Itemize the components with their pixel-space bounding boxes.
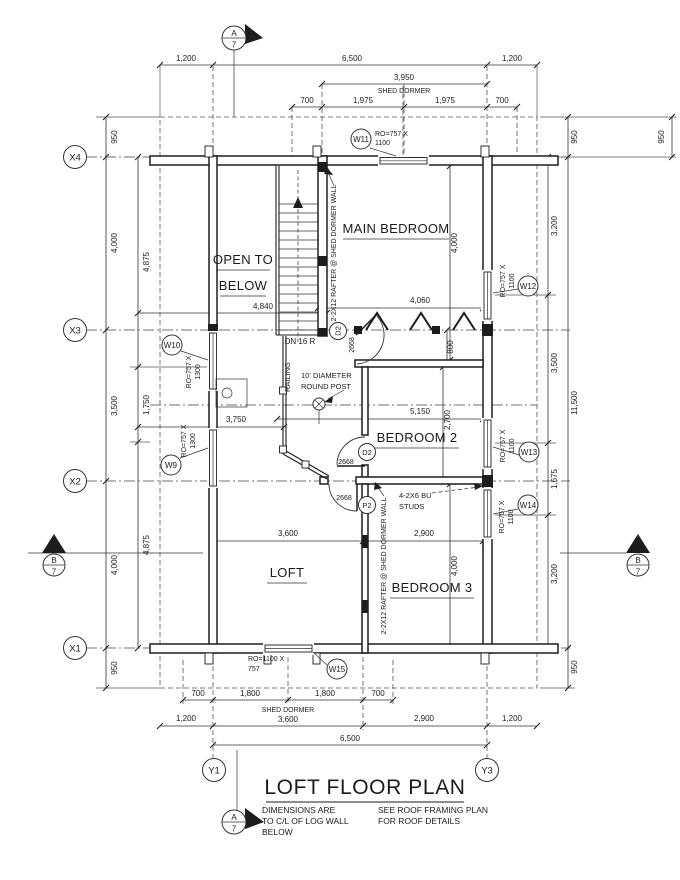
room-label-bedroom2: BEDROOM 2 — [377, 430, 458, 445]
dim-right-950-top: 950 — [570, 130, 579, 144]
note-roof-line2: FOR ROOF DETAILS — [378, 816, 460, 826]
main-bedroom-south-wall — [355, 360, 483, 367]
dim-top-3950: 3,950 — [394, 73, 415, 82]
round-post-note-line2: ROUND POST — [301, 382, 351, 391]
note-dims-line1: DIMENSIONS ARE — [262, 805, 336, 815]
dim-bottom-1800b: 1,800 — [315, 689, 336, 698]
dim-bottom-700b: 700 — [371, 689, 385, 698]
dim-mb-4060: 4,060 — [410, 296, 431, 305]
dim-stair-4840: 4,840 — [253, 302, 274, 311]
dim-left-1750: 1,750 — [142, 394, 151, 415]
dim-left-4000-bottom: 4,000 — [110, 554, 119, 575]
post-square — [432, 326, 440, 334]
studs-note-line1: 4-2X6 BU — [399, 491, 432, 500]
dim-right-3200-top: 3,200 — [550, 215, 559, 236]
dim-left-3500: 3,500 — [110, 395, 119, 416]
w14-ro-line2: 1100 — [508, 509, 515, 524]
section-a-top-sheet: 7 — [232, 41, 237, 50]
grid-label-x3: X3 — [69, 326, 81, 337]
dim-right-3500: 3,500 — [550, 352, 559, 373]
dim-left-950-top: 950 — [110, 130, 119, 144]
drawing-title: LOFT FLOOR PLAN — [264, 776, 465, 799]
dim-mb-800: 800 — [446, 340, 455, 354]
grid-label-x2: X2 — [69, 477, 81, 488]
d2-bed2-label: D2 — [362, 448, 372, 457]
dim-top-6500: 6,500 — [342, 54, 363, 63]
room-label-main-bedroom: MAIN BEDROOM — [343, 221, 450, 236]
stair-dormer-wall — [318, 156, 327, 336]
railing-label: RAILING — [283, 362, 292, 392]
dim-bottom-1200-left: 1,200 — [176, 714, 197, 723]
dim-bottom-shed-dormer: SHED DORMER — [262, 707, 315, 714]
p2-label: P2 — [362, 501, 371, 510]
w9-ro-line2: 1300 — [190, 433, 197, 449]
dim-left-950-bottom: 950 — [110, 661, 119, 675]
grid-label-y3: Y3 — [481, 766, 493, 777]
section-b-left-sheet: 7 — [52, 568, 57, 577]
section-b-left-letter: B — [51, 556, 56, 565]
section-b-right-letter: B — [635, 556, 640, 565]
w15-ro-line1: RO=1100 X — [248, 656, 285, 663]
grid-label-x4: X4 — [69, 153, 81, 164]
section-b-right-sheet: 7 — [636, 568, 641, 577]
d2-main-label: D2 — [334, 326, 343, 336]
dim-mb-4000: 4,000 — [450, 232, 459, 253]
w10-label: W10 — [164, 341, 181, 350]
dim-right-edge-950: 950 — [657, 130, 666, 144]
room-label-open-to: OPEN TO — [213, 252, 273, 267]
p2-size: 2668 — [336, 495, 352, 502]
dim-bottom-1200-right: 1,200 — [502, 714, 523, 723]
dim-left-4875-upper: 4,875 — [142, 251, 151, 272]
w15-label: W15 — [329, 665, 346, 674]
note-roof-line1: SEE ROOF FRAMING PLAN — [378, 805, 488, 815]
w13-ro-line1: RO=757 X — [500, 429, 507, 462]
rafter-note-bed3: 2-2X12 RAFTER @ SHED DORMER WALL — [381, 498, 388, 635]
dim-top-shed-dormer: SHED DORMER — [378, 88, 431, 95]
w12-label: W12 — [520, 282, 537, 291]
bedroom2-west-wall-lower — [362, 465, 368, 477]
d2-main-size: 2668 — [349, 337, 356, 353]
grid-label-y1: Y1 — [208, 766, 220, 777]
section-a-bottom-sheet: 7 — [232, 825, 237, 834]
dim-bottom-2900: 2,900 — [414, 714, 435, 723]
dim-loft-3750: 3,750 — [226, 415, 247, 424]
w11-label: W11 — [353, 135, 369, 144]
w10-ro-line2: 1300 — [195, 364, 202, 380]
w12-ro-line2: 1100 — [509, 273, 516, 288]
rafter-note-stair: 2-2X12 RAFTER @ SHED DORMER WALL — [331, 185, 338, 322]
room-label-loft: LOFT — [270, 565, 304, 580]
w13-label: W13 — [521, 448, 538, 457]
stair-down-label: DN 16 R — [285, 337, 316, 346]
note-dims-line3: BELOW — [262, 827, 293, 837]
w15-ro-line2: 757 — [248, 666, 260, 673]
dim-right-950-bottom: 950 — [570, 660, 579, 674]
floor-plan-drawing: W11 W10 W9 W12 W13 W14 W15 RO=757 X 1100… — [0, 0, 680, 880]
dim-top-1975a: 1,975 — [353, 96, 374, 105]
dim-b2-2700: 2,700 — [443, 409, 452, 430]
room-label-below: BELOW — [219, 278, 268, 293]
w12-ro-line1: RO=757 X — [500, 264, 507, 297]
section-a-bottom-letter: A — [231, 813, 237, 822]
w11-ro-line2: 1100 — [375, 140, 390, 147]
dim-bottom-3600: 3,600 — [278, 715, 299, 724]
w11-ro-line1: RO=757 X — [375, 131, 408, 138]
w9-label: W9 — [165, 461, 178, 470]
dim-right-1675: 1,675 — [550, 468, 559, 489]
dim-right-11500: 11,500 — [570, 391, 579, 415]
floor-plan-sheet: W11 W10 W9 W12 W13 W14 W15 RO=757 X 1100… — [0, 0, 680, 880]
bedroom2-west-wall-upper — [362, 367, 368, 435]
round-post-note-line1: 10' DIAMETER — [301, 371, 352, 380]
dim-top-1200-left: 1,200 — [176, 54, 197, 63]
right-log-wall — [483, 156, 492, 653]
w14-ro-line1: RO=757 X — [499, 500, 506, 533]
x2-wall — [356, 477, 492, 484]
section-a-top-letter: A — [231, 29, 237, 38]
studs-note-line2: STUDS — [399, 502, 424, 511]
dim-top-1975b: 1,975 — [435, 96, 456, 105]
dim-left-4875-lower: 4,875 — [142, 534, 151, 555]
w13-ro-line2: 1100 — [509, 438, 516, 453]
dim-b3-2900: 2,900 — [414, 529, 435, 538]
dim-left-4000-top: 4,000 — [110, 232, 119, 253]
note-dims-line2: TO C/L OF LOG WALL — [262, 816, 349, 826]
grid-label-x1: X1 — [69, 644, 81, 655]
w9-ro-line1: RO=757 X — [181, 424, 188, 457]
dim-top-700b: 700 — [495, 96, 509, 105]
dim-open-5150: 5,150 — [410, 407, 431, 416]
x2-wall-west-stub — [320, 477, 328, 484]
d2-bed2-size: 2668 — [338, 459, 354, 466]
dim-bottom-6500: 6,500 — [340, 734, 361, 743]
w10-ro-line1: RO=757 X — [186, 355, 193, 388]
dim-top-700a: 700 — [300, 96, 314, 105]
bottom-log-wall — [150, 644, 558, 653]
dim-top-1200-right: 1,200 — [502, 54, 523, 63]
dim-loft-3600: 3,600 — [278, 529, 299, 538]
dim-bottom-700a: 700 — [191, 689, 205, 698]
w14-label: W14 — [520, 501, 537, 510]
room-label-bedroom3: BEDROOM 3 — [392, 580, 473, 595]
dim-b3-4000: 4,000 — [450, 555, 459, 576]
dim-bottom-1800a: 1,800 — [240, 689, 261, 698]
dim-right-3200-bottom: 3,200 — [550, 563, 559, 584]
